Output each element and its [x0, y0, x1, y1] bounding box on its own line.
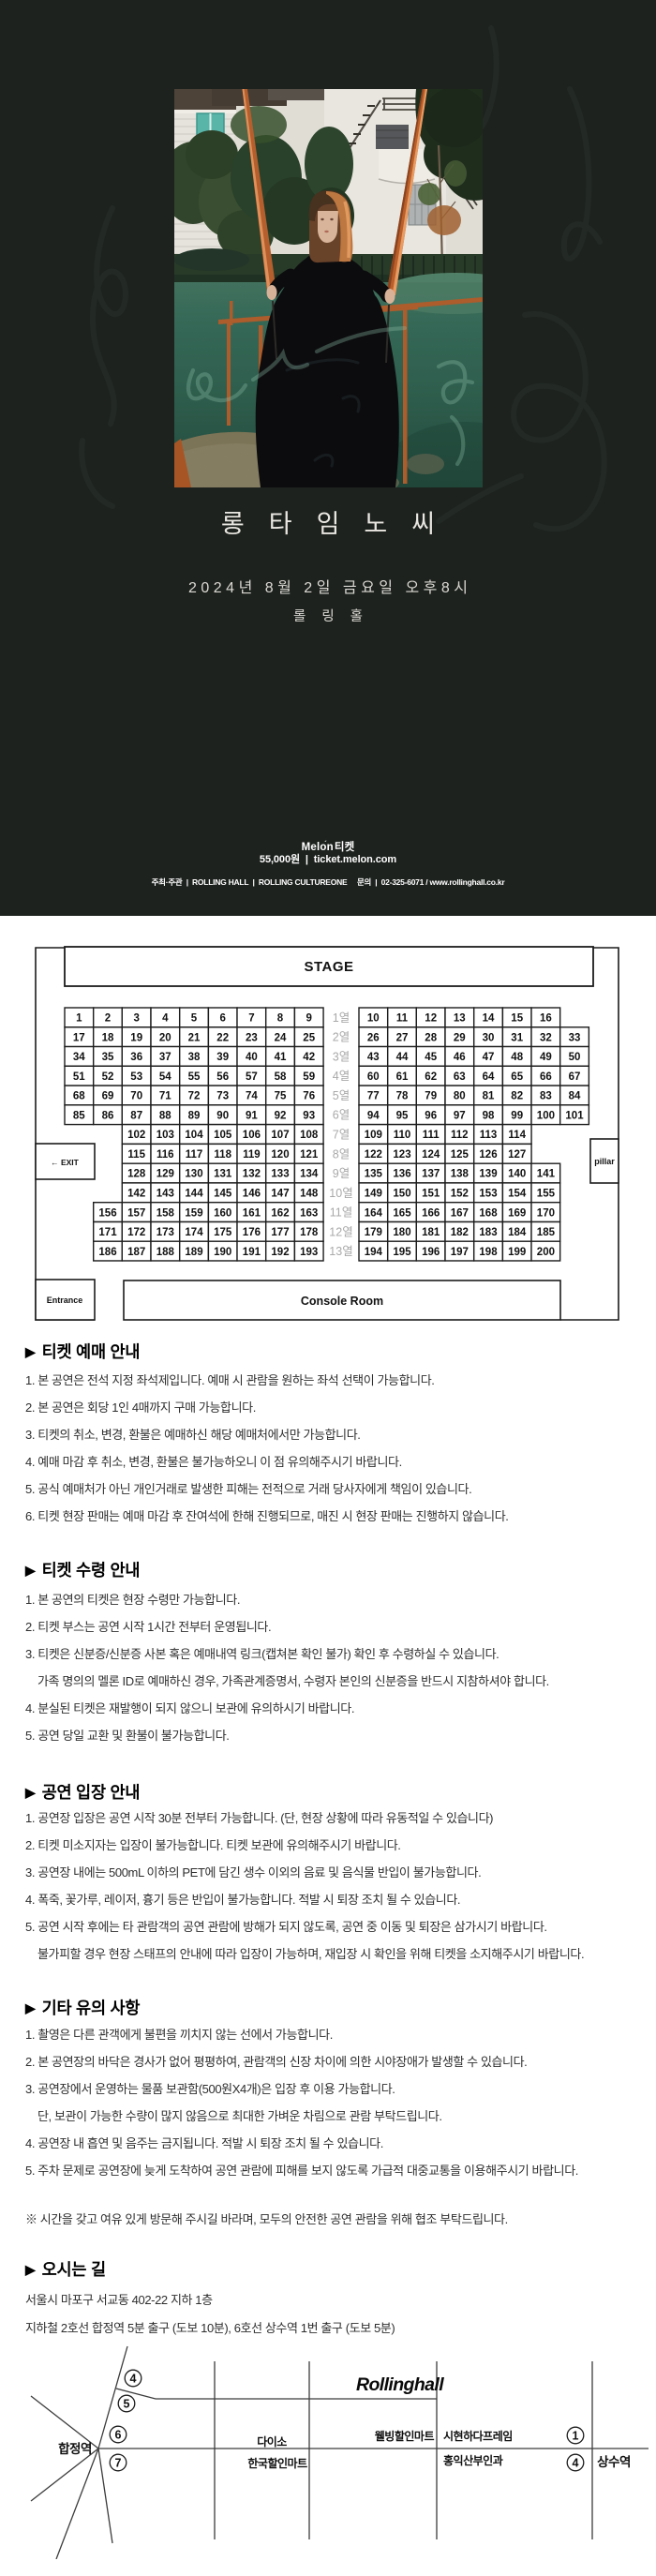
svg-text:82: 82 [511, 1091, 523, 1102]
svg-text:33: 33 [569, 1032, 581, 1043]
svg-text:155: 155 [537, 1189, 556, 1200]
svg-text:153: 153 [479, 1189, 497, 1200]
svg-text:40: 40 [246, 1052, 258, 1063]
svg-text:129: 129 [157, 1169, 174, 1180]
svg-text:65: 65 [511, 1071, 523, 1083]
svg-text:4: 4 [130, 2373, 137, 2386]
svg-text:70: 70 [130, 1091, 142, 1102]
svg-text:27: 27 [396, 1032, 409, 1043]
svg-text:9: 9 [306, 1013, 311, 1025]
svg-text:19: 19 [130, 1032, 142, 1043]
svg-text:99: 99 [511, 1110, 523, 1121]
svg-text:홍익산부인과: 홍익산부인과 [443, 2453, 503, 2467]
svg-text:181: 181 [422, 1227, 440, 1238]
svg-text:41: 41 [275, 1052, 287, 1063]
svg-text:Rollinghall: Rollinghall [356, 2374, 444, 2395]
svg-text:111: 111 [423, 1130, 440, 1141]
svg-text:94: 94 [367, 1110, 380, 1121]
svg-text:6: 6 [219, 1013, 225, 1025]
svg-text:127: 127 [508, 1149, 526, 1161]
svg-text:133: 133 [271, 1169, 289, 1180]
svg-text:117: 117 [186, 1149, 203, 1161]
svg-text:7: 7 [248, 1013, 254, 1025]
svg-text:95: 95 [396, 1110, 409, 1121]
svg-text:44: 44 [396, 1052, 409, 1063]
svg-text:124: 124 [422, 1149, 440, 1161]
svg-text:16: 16 [540, 1013, 552, 1025]
svg-text:5: 5 [124, 2398, 130, 2411]
svg-text:7: 7 [115, 2457, 122, 2470]
svg-text:135: 135 [365, 1169, 383, 1180]
svg-text:4: 4 [162, 1013, 169, 1025]
svg-text:60: 60 [367, 1071, 380, 1083]
svg-text:178: 178 [300, 1227, 319, 1238]
svg-text:163: 163 [300, 1207, 318, 1219]
svg-text:47: 47 [483, 1052, 495, 1063]
svg-text:164: 164 [365, 1207, 383, 1219]
svg-text:32: 32 [540, 1032, 552, 1043]
svg-text:189: 189 [185, 1247, 202, 1258]
svg-text:110: 110 [394, 1130, 411, 1141]
svg-text:5: 5 [191, 1013, 198, 1025]
svg-text:상수역: 상수역 [597, 2454, 631, 2469]
svg-text:107: 107 [271, 1130, 289, 1141]
svg-text:6: 6 [115, 2429, 122, 2442]
svg-text:57: 57 [246, 1071, 258, 1083]
svg-text:177: 177 [271, 1227, 289, 1238]
svg-text:149: 149 [365, 1189, 382, 1200]
svg-text:102: 102 [127, 1130, 145, 1141]
svg-text:161: 161 [243, 1207, 261, 1219]
svg-text:39: 39 [216, 1052, 229, 1063]
svg-text:173: 173 [157, 1227, 174, 1238]
svg-text:합정역: 합정역 [58, 2441, 92, 2456]
svg-text:73: 73 [216, 1091, 229, 1102]
svg-text:174: 174 [185, 1227, 203, 1238]
svg-text:132: 132 [243, 1169, 261, 1180]
svg-text:166: 166 [422, 1207, 440, 1219]
svg-text:63: 63 [454, 1071, 466, 1083]
svg-text:12열: 12열 [329, 1225, 352, 1238]
svg-text:72: 72 [188, 1091, 201, 1102]
svg-text:120: 120 [271, 1149, 289, 1161]
svg-text:97: 97 [454, 1110, 466, 1121]
svg-text:49: 49 [540, 1052, 552, 1063]
svg-text:Console Room: Console Room [301, 1295, 383, 1308]
svg-text:136: 136 [393, 1169, 410, 1180]
svg-text:143: 143 [157, 1189, 174, 1200]
svg-text:8: 8 [277, 1013, 284, 1025]
svg-text:151: 151 [422, 1189, 440, 1200]
svg-text:122: 122 [365, 1149, 382, 1161]
svg-text:121: 121 [300, 1149, 319, 1161]
svg-text:113: 113 [480, 1130, 498, 1141]
svg-text:191: 191 [243, 1247, 261, 1258]
svg-text:116: 116 [157, 1149, 174, 1161]
svg-text:88: 88 [159, 1110, 171, 1121]
svg-text:118: 118 [214, 1149, 231, 1161]
svg-text:185: 185 [537, 1227, 556, 1238]
svg-text:192: 192 [271, 1247, 289, 1258]
svg-text:157: 157 [127, 1207, 145, 1219]
svg-text:175: 175 [214, 1227, 232, 1238]
svg-text:84: 84 [569, 1091, 581, 1102]
svg-text:7열: 7열 [333, 1129, 350, 1142]
svg-text:170: 170 [537, 1207, 555, 1219]
svg-text:123: 123 [393, 1149, 410, 1161]
svg-text:69: 69 [102, 1091, 114, 1102]
svg-text:11: 11 [396, 1013, 409, 1025]
svg-text:145: 145 [214, 1189, 232, 1200]
svg-text:83: 83 [540, 1091, 552, 1102]
svg-text:80: 80 [454, 1091, 466, 1102]
svg-text:10열: 10열 [329, 1187, 352, 1200]
svg-text:2열: 2열 [333, 1031, 350, 1044]
svg-text:156: 156 [98, 1207, 116, 1219]
svg-text:167: 167 [451, 1207, 469, 1219]
svg-text:108: 108 [300, 1130, 319, 1141]
svg-text:79: 79 [425, 1091, 437, 1102]
svg-text:197: 197 [451, 1247, 469, 1258]
svg-text:148: 148 [300, 1189, 319, 1200]
svg-text:48: 48 [511, 1052, 523, 1063]
svg-text:154: 154 [508, 1189, 527, 1200]
svg-text:150: 150 [393, 1189, 410, 1200]
svg-text:109: 109 [365, 1130, 382, 1141]
svg-text:183: 183 [479, 1227, 497, 1238]
svg-text:158: 158 [157, 1207, 175, 1219]
svg-text:26: 26 [367, 1032, 380, 1043]
svg-text:5열: 5열 [333, 1089, 350, 1102]
svg-text:105: 105 [214, 1130, 232, 1141]
svg-text:101: 101 [565, 1110, 584, 1121]
svg-text:125: 125 [451, 1149, 470, 1161]
svg-text:54: 54 [159, 1071, 171, 1083]
svg-text:74: 74 [246, 1091, 258, 1102]
svg-text:172: 172 [127, 1227, 145, 1238]
svg-text:24: 24 [275, 1032, 287, 1043]
svg-text:2: 2 [105, 1013, 111, 1025]
svg-text:142: 142 [127, 1189, 145, 1200]
svg-text:31: 31 [511, 1032, 523, 1043]
svg-text:128: 128 [127, 1169, 146, 1180]
svg-text:22: 22 [216, 1032, 229, 1043]
svg-text:85: 85 [73, 1110, 85, 1121]
svg-text:130: 130 [185, 1169, 202, 1180]
svg-text:195: 195 [393, 1247, 411, 1258]
svg-text:13: 13 [454, 1013, 466, 1025]
svg-text:71: 71 [159, 1091, 171, 1102]
svg-text:6열: 6열 [333, 1109, 350, 1122]
svg-text:159: 159 [185, 1207, 202, 1219]
svg-text:114: 114 [508, 1130, 526, 1141]
svg-text:103: 103 [157, 1130, 174, 1141]
svg-text:91: 91 [246, 1110, 258, 1121]
svg-text:194: 194 [365, 1247, 383, 1258]
svg-text:25: 25 [303, 1032, 315, 1043]
svg-text:184: 184 [508, 1227, 527, 1238]
svg-text:1: 1 [573, 2430, 579, 2443]
svg-text:58: 58 [275, 1071, 287, 1083]
svg-text:56: 56 [216, 1071, 229, 1083]
svg-text:4: 4 [573, 2457, 579, 2470]
svg-text:← EXIT: ← EXIT [51, 1158, 80, 1167]
svg-text:90: 90 [216, 1110, 229, 1121]
svg-text:웰빙할인마트: 웰빙할인마트 [375, 2429, 435, 2443]
svg-text:37: 37 [159, 1052, 171, 1063]
svg-text:176: 176 [243, 1227, 261, 1238]
svg-text:17: 17 [73, 1032, 85, 1043]
svg-text:134: 134 [300, 1169, 319, 1180]
svg-text:한국할인마트: 한국할인마트 [247, 2456, 307, 2470]
svg-text:STAGE: STAGE [304, 959, 353, 975]
svg-text:199: 199 [508, 1247, 526, 1258]
svg-text:87: 87 [130, 1110, 142, 1121]
svg-text:21: 21 [188, 1032, 201, 1043]
svg-text:13열: 13열 [329, 1245, 352, 1258]
svg-text:112: 112 [451, 1130, 469, 1141]
svg-text:198: 198 [479, 1247, 498, 1258]
svg-text:119: 119 [243, 1149, 261, 1161]
svg-text:46: 46 [454, 1052, 466, 1063]
svg-text:96: 96 [425, 1110, 437, 1121]
svg-text:152: 152 [451, 1189, 469, 1200]
svg-text:139: 139 [479, 1169, 497, 1180]
svg-text:78: 78 [396, 1091, 409, 1102]
svg-text:3열: 3열 [333, 1050, 350, 1063]
svg-text:147: 147 [271, 1189, 289, 1200]
svg-text:188: 188 [157, 1247, 175, 1258]
svg-text:115: 115 [127, 1149, 145, 1161]
svg-text:61: 61 [396, 1071, 409, 1083]
svg-text:38: 38 [188, 1052, 201, 1063]
svg-text:182: 182 [451, 1227, 469, 1238]
svg-text:52: 52 [102, 1071, 114, 1083]
svg-text:14: 14 [483, 1013, 495, 1025]
svg-text:42: 42 [303, 1052, 315, 1063]
svg-text:171: 171 [98, 1227, 117, 1238]
svg-text:43: 43 [367, 1052, 380, 1063]
svg-text:1: 1 [76, 1013, 82, 1025]
svg-text:8열: 8열 [333, 1147, 350, 1161]
svg-text:186: 186 [98, 1247, 116, 1258]
svg-text:137: 137 [422, 1169, 440, 1180]
svg-text:131: 131 [214, 1169, 232, 1180]
svg-text:86: 86 [102, 1110, 114, 1121]
svg-text:187: 187 [127, 1247, 145, 1258]
svg-text:34: 34 [73, 1052, 85, 1063]
svg-text:68: 68 [73, 1091, 85, 1102]
svg-text:168: 168 [479, 1207, 498, 1219]
svg-text:1열: 1열 [333, 1011, 350, 1025]
svg-text:92: 92 [275, 1110, 287, 1121]
svg-text:76: 76 [303, 1091, 315, 1102]
svg-text:Entrance: Entrance [47, 1295, 83, 1305]
svg-text:165: 165 [393, 1207, 411, 1219]
svg-text:196: 196 [422, 1247, 440, 1258]
svg-text:146: 146 [243, 1189, 261, 1200]
svg-text:81: 81 [483, 1091, 495, 1102]
svg-text:50: 50 [569, 1052, 581, 1063]
svg-text:55: 55 [188, 1071, 201, 1083]
svg-text:190: 190 [214, 1247, 231, 1258]
svg-text:180: 180 [393, 1227, 410, 1238]
svg-text:23: 23 [246, 1032, 258, 1043]
svg-text:29: 29 [454, 1032, 466, 1043]
svg-text:140: 140 [508, 1169, 526, 1180]
svg-text:138: 138 [451, 1169, 470, 1180]
svg-text:89: 89 [188, 1110, 201, 1121]
svg-text:15: 15 [511, 1013, 523, 1025]
svg-text:18: 18 [102, 1032, 114, 1043]
svg-text:67: 67 [569, 1071, 581, 1083]
svg-text:62: 62 [425, 1071, 437, 1083]
svg-text:pillar: pillar [594, 1157, 615, 1166]
svg-text:36: 36 [130, 1052, 142, 1063]
svg-text:3: 3 [133, 1013, 139, 1025]
svg-text:100: 100 [537, 1110, 555, 1121]
svg-text:4열: 4열 [333, 1070, 350, 1083]
svg-text:141: 141 [537, 1169, 556, 1180]
svg-text:93: 93 [303, 1110, 315, 1121]
svg-text:59: 59 [303, 1071, 315, 1083]
svg-text:66: 66 [540, 1071, 552, 1083]
svg-text:144: 144 [185, 1189, 203, 1200]
svg-text:200: 200 [537, 1247, 555, 1258]
svg-text:193: 193 [300, 1247, 318, 1258]
svg-text:179: 179 [365, 1227, 382, 1238]
svg-text:169: 169 [508, 1207, 526, 1219]
svg-text:45: 45 [425, 1052, 437, 1063]
svg-text:162: 162 [271, 1207, 289, 1219]
svg-text:다이소: 다이소 [257, 2434, 287, 2449]
svg-text:77: 77 [367, 1091, 380, 1102]
svg-text:75: 75 [275, 1091, 287, 1102]
svg-text:160: 160 [214, 1207, 231, 1219]
svg-text:30: 30 [483, 1032, 495, 1043]
svg-text:51: 51 [73, 1071, 85, 1083]
svg-text:98: 98 [483, 1110, 495, 1121]
svg-text:106: 106 [243, 1130, 261, 1141]
svg-text:12: 12 [425, 1013, 437, 1025]
svg-text:20: 20 [159, 1032, 171, 1043]
svg-text:시현하다프레임: 시현하다프레임 [443, 2429, 513, 2443]
svg-text:28: 28 [425, 1032, 437, 1043]
svg-text:126: 126 [479, 1149, 497, 1161]
svg-text:11열: 11열 [330, 1206, 352, 1220]
svg-text:64: 64 [483, 1071, 495, 1083]
svg-text:35: 35 [102, 1052, 114, 1063]
svg-text:10: 10 [367, 1013, 380, 1025]
svg-text:53: 53 [130, 1071, 142, 1083]
svg-text:104: 104 [185, 1130, 203, 1141]
svg-text:9열: 9열 [333, 1167, 350, 1180]
